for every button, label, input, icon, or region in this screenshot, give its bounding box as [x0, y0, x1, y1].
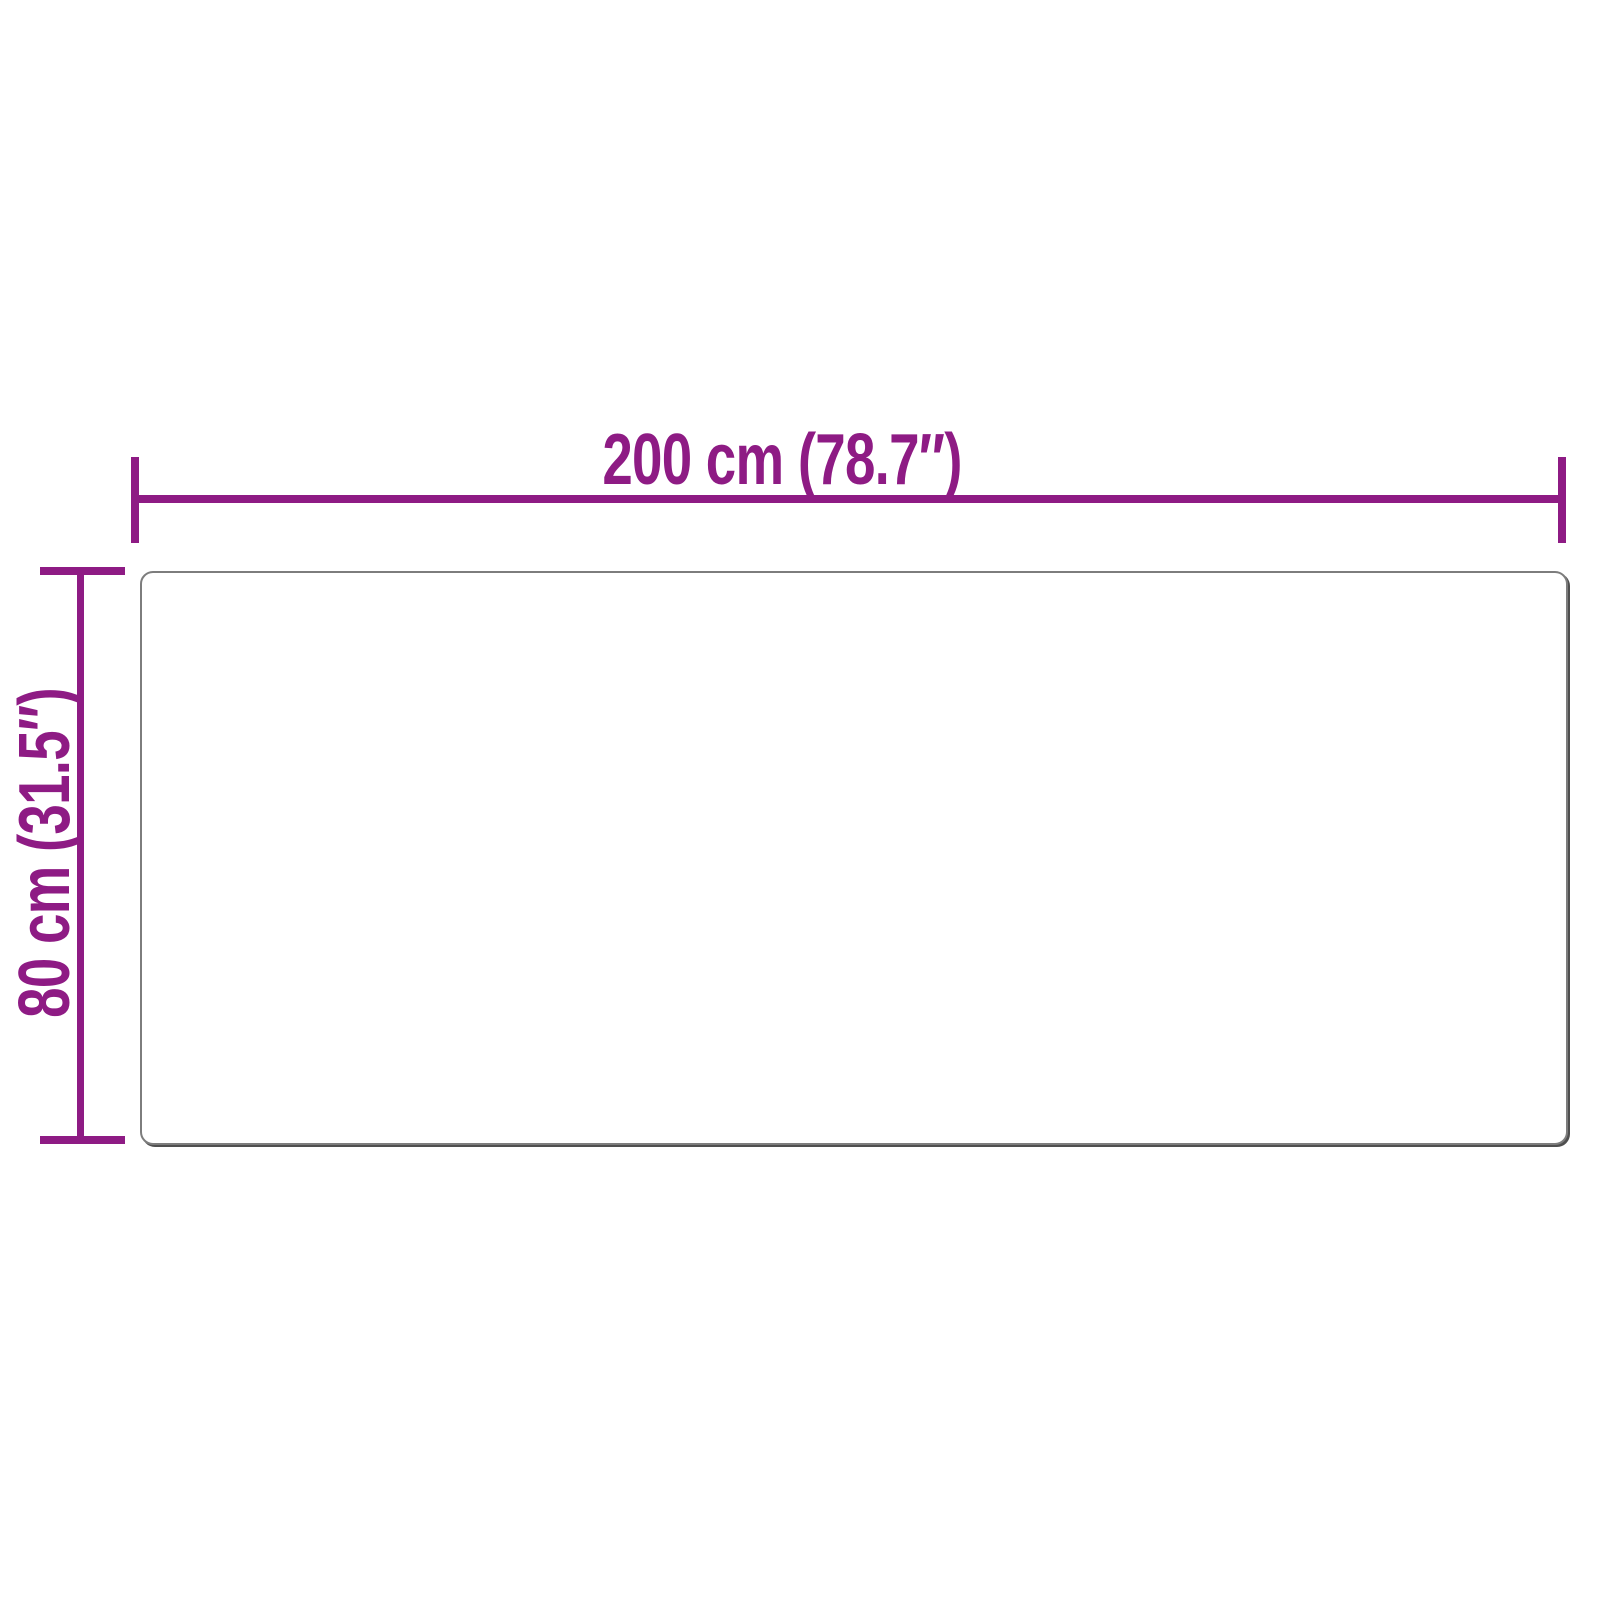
product-dimension-diagram: 200 cm (78.7″) 80 cm (31.5″) — [0, 0, 1600, 1600]
width-dimension-left-tick — [131, 457, 139, 543]
product-outline-rectangle — [140, 571, 1568, 1145]
width-label: 200 cm (78.7″) — [554, 424, 1010, 496]
height-dimension-top-tick — [40, 567, 125, 575]
height-label: 80 cm (31.5″) — [9, 625, 81, 1081]
height-dimension-bottom-tick — [40, 1136, 125, 1144]
width-dimension-right-tick — [1558, 457, 1566, 543]
